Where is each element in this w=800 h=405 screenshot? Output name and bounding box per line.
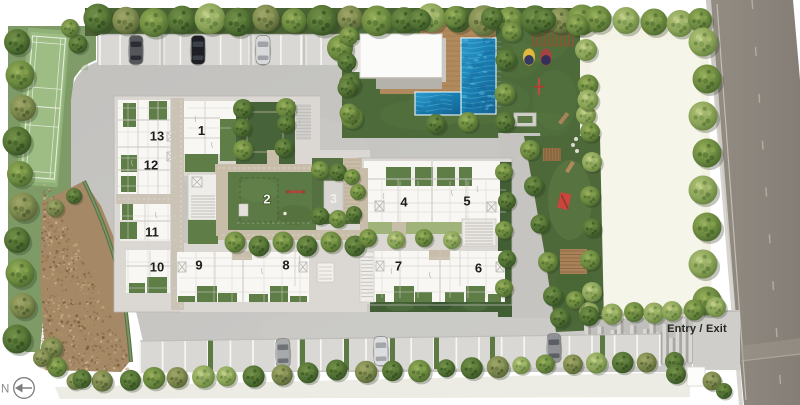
svg-text:12: 12 bbox=[144, 158, 158, 173]
svg-text:2: 2 bbox=[263, 192, 270, 207]
svg-text:N: N bbox=[1, 384, 9, 396]
svg-text:6: 6 bbox=[475, 261, 482, 276]
svg-text:5: 5 bbox=[463, 194, 470, 209]
svg-text:Entry / Exit: Entry / Exit bbox=[667, 323, 727, 335]
svg-text:11: 11 bbox=[145, 225, 159, 240]
svg-text:13: 13 bbox=[150, 129, 164, 144]
svg-text:4: 4 bbox=[400, 195, 408, 210]
svg-text:10: 10 bbox=[150, 260, 164, 275]
svg-text:9: 9 bbox=[195, 258, 202, 273]
svg-text:8: 8 bbox=[282, 258, 289, 273]
svg-text:3: 3 bbox=[330, 192, 337, 206]
svg-text:7: 7 bbox=[395, 259, 402, 274]
svg-text:1: 1 bbox=[198, 123, 205, 138]
